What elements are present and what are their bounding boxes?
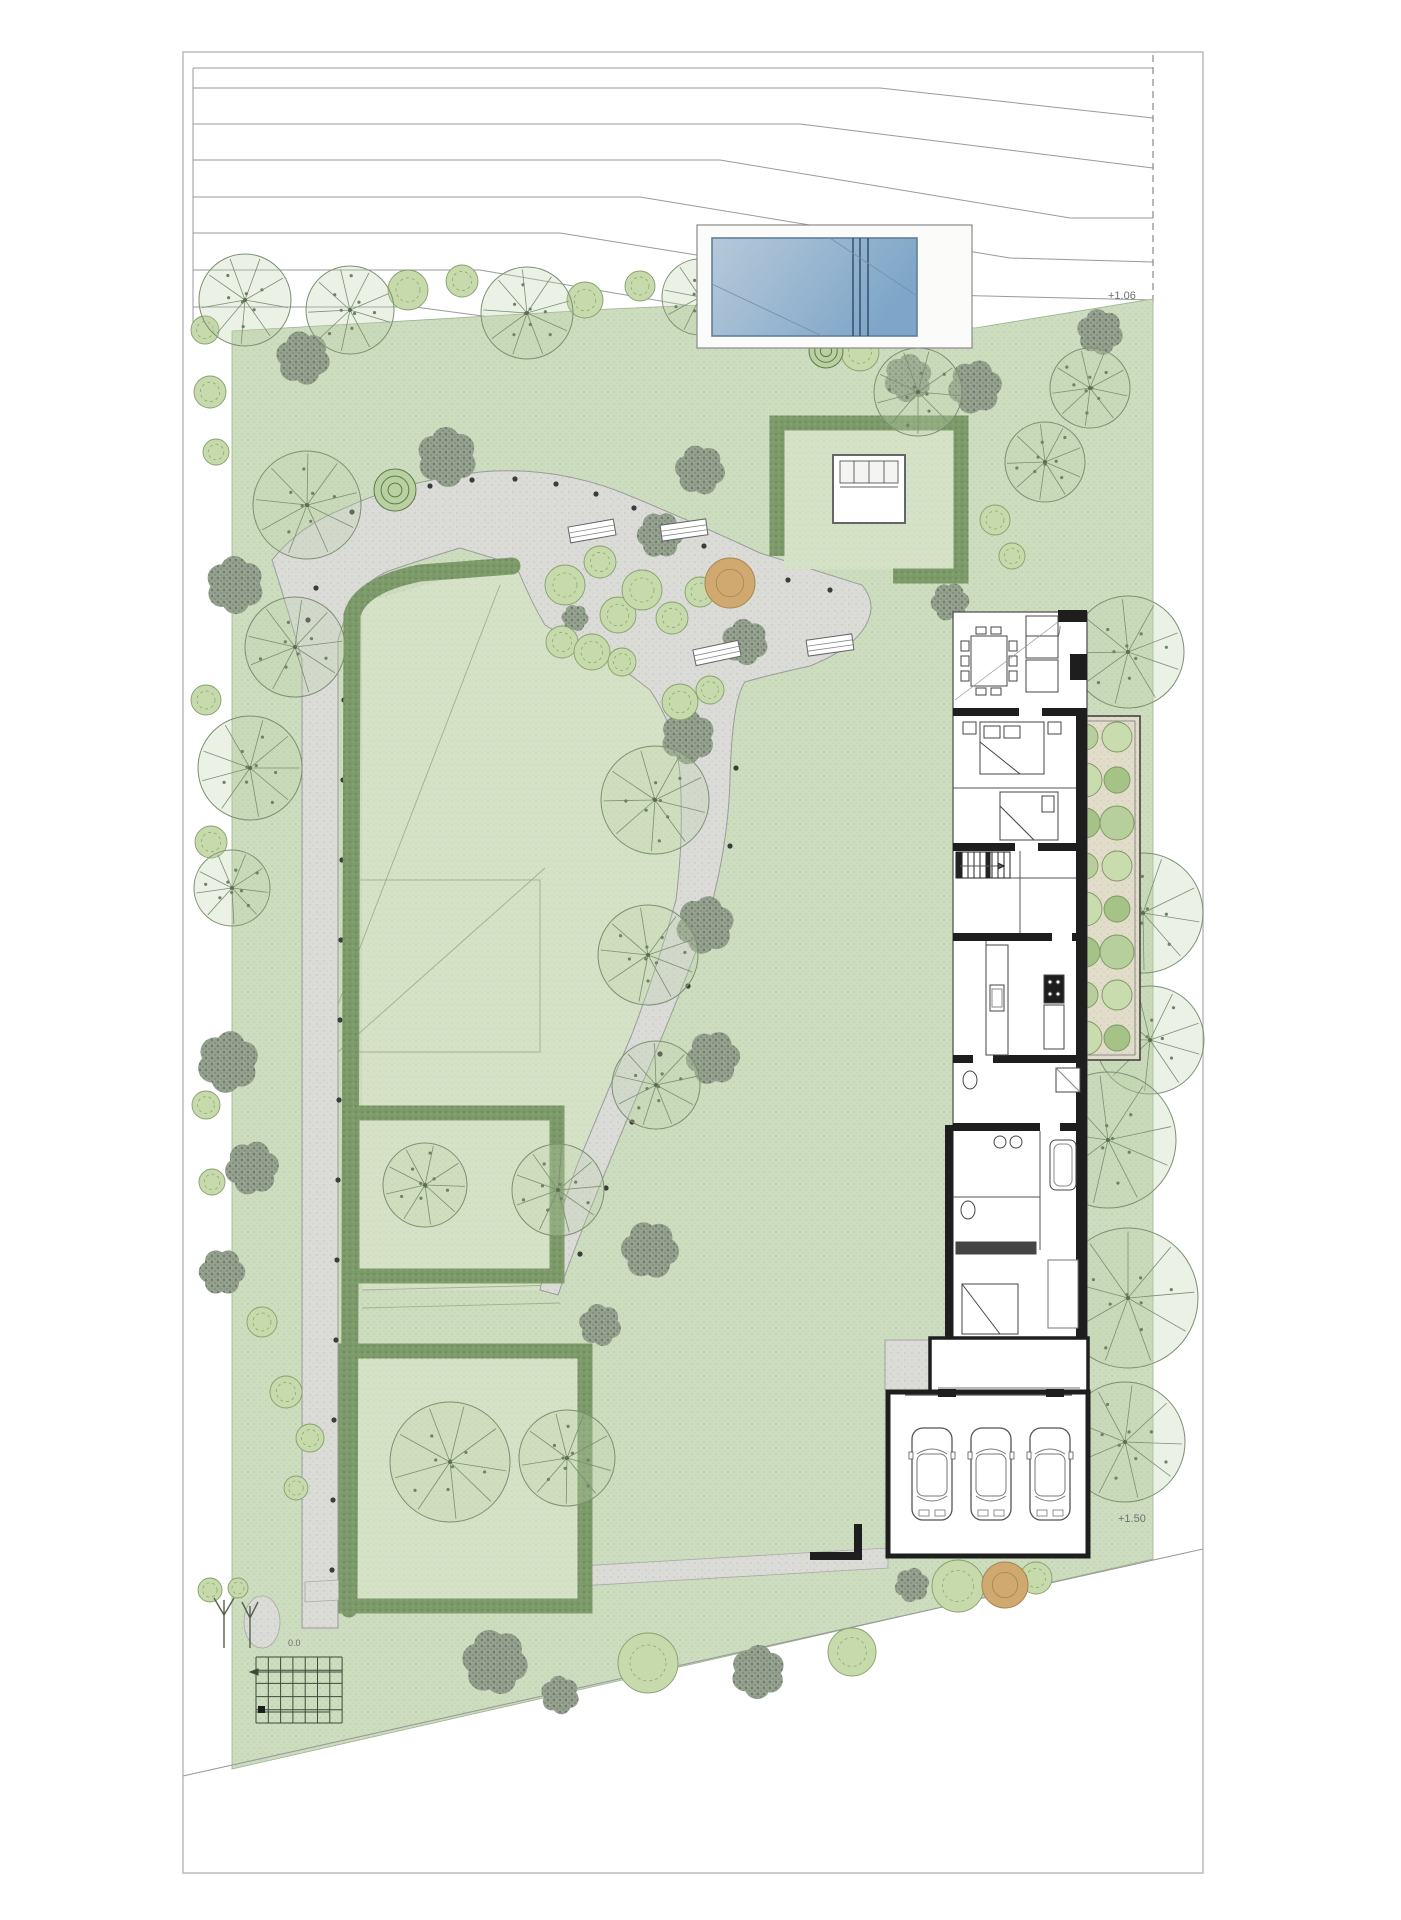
shrub <box>980 505 1010 535</box>
canopy-tree <box>199 254 291 346</box>
shrub <box>932 1560 984 1612</box>
path-marker-dot <box>733 765 738 770</box>
canopy-tree <box>519 1410 615 1506</box>
shrub <box>270 1376 302 1408</box>
ring-shrub <box>374 469 416 511</box>
canopy-tree <box>245 597 345 697</box>
basin <box>994 1136 1006 1148</box>
path-marker-dot <box>337 1017 342 1022</box>
sofa-2 <box>1026 660 1058 692</box>
stove <box>1044 975 1064 1003</box>
tan-shrub <box>982 1562 1028 1608</box>
shrub <box>584 546 616 578</box>
path-marker-dot <box>331 1417 336 1422</box>
planter-shrub <box>1102 722 1132 752</box>
shrub <box>228 1578 248 1598</box>
swimming-pool <box>697 225 972 348</box>
planter-shrub <box>1100 935 1134 969</box>
toilet-2 <box>961 1201 975 1219</box>
path-marker-dot <box>827 587 832 592</box>
shrub <box>622 570 662 610</box>
shrub <box>608 648 636 676</box>
kitchen-counter-2 <box>1044 1005 1064 1049</box>
path-marker-dot <box>785 577 790 582</box>
shrub <box>199 1169 225 1195</box>
shrub <box>662 684 698 720</box>
dining-table <box>971 636 1007 686</box>
garage-cars <box>909 1428 1073 1520</box>
drawing-sheet-page: +1.06 +1.50 0.0 <box>0 0 1401 1920</box>
path-marker-dot <box>313 585 318 590</box>
sofa <box>1026 616 1058 658</box>
shrub <box>696 676 724 704</box>
tan-shrub <box>705 558 755 608</box>
shrub <box>828 1628 876 1676</box>
elevation-label-upper: +1.06 <box>1108 290 1136 302</box>
car-2 <box>968 1428 1014 1520</box>
staircase <box>956 852 1010 878</box>
canopy-tree <box>198 716 302 820</box>
canopy-tree <box>598 905 698 1005</box>
planter-shrub <box>1104 896 1130 922</box>
canopy-tree <box>390 1402 510 1522</box>
shrub <box>574 634 610 670</box>
canopy-tree <box>1005 422 1085 502</box>
shrub <box>625 271 655 301</box>
entry-paving <box>885 1340 929 1390</box>
path-marker-dot <box>333 1337 338 1342</box>
bed-third <box>962 1284 1018 1334</box>
shrub <box>198 1578 222 1602</box>
canopy-tree <box>512 1144 604 1236</box>
path-marker-dot <box>330 1497 335 1502</box>
shrub <box>247 1307 277 1337</box>
path-marker-dot <box>701 543 706 548</box>
car-3 <box>1027 1428 1073 1520</box>
site-plan-drawing: +1.06 +1.50 0.0 <box>0 0 1401 1920</box>
canopy-tree <box>481 267 573 359</box>
shrub <box>296 1424 324 1452</box>
path-marker-dot <box>334 1257 339 1262</box>
planter-shrub <box>1102 851 1132 881</box>
elevation-label-lower: +1.50 <box>1118 1513 1146 1525</box>
planter-shrub <box>1104 767 1130 793</box>
canopy-tree <box>383 1143 467 1227</box>
canopy-tree <box>306 266 394 354</box>
path-marker-dot <box>469 477 474 482</box>
planter-shrub <box>1100 806 1134 840</box>
canopy-tree <box>612 1041 700 1129</box>
path-marker-dot <box>512 476 517 481</box>
canopy-tree <box>601 746 709 854</box>
shrub <box>203 439 229 465</box>
shrub <box>191 685 221 715</box>
shrub <box>618 1633 678 1693</box>
closet <box>1048 1260 1078 1328</box>
shrub <box>192 1091 220 1119</box>
shrub <box>656 602 688 634</box>
shrub <box>446 265 478 297</box>
canopy-tree <box>253 451 361 559</box>
planter-shrub <box>1102 980 1132 1010</box>
path-marker-dot <box>427 483 432 488</box>
path-marker-dot <box>593 491 598 496</box>
canopy-tree <box>1072 596 1184 708</box>
toilet <box>963 1071 977 1089</box>
canopy-tree <box>194 850 270 926</box>
path-marker-dot <box>329 1567 334 1572</box>
garage <box>888 1389 1088 1556</box>
planter-shrub <box>1104 1025 1130 1051</box>
shrub <box>545 565 585 605</box>
path-marker-dot <box>631 505 636 510</box>
path-marker-dot <box>553 481 558 486</box>
shrub <box>284 1476 308 1500</box>
shrub <box>194 376 226 408</box>
entry-vestibule <box>885 1338 1088 1394</box>
basin-2 <box>1010 1136 1022 1148</box>
shrub <box>546 626 578 658</box>
path-marker-dot <box>727 843 732 848</box>
path-marker-dot <box>336 1097 341 1102</box>
shrub <box>999 543 1025 569</box>
pool-water <box>712 238 917 336</box>
canopy-tree <box>1050 348 1130 428</box>
canopy-tree <box>874 348 962 436</box>
path-marker-dot <box>577 1251 582 1256</box>
car-1 <box>909 1428 955 1520</box>
path-marker-dot <box>335 1177 340 1182</box>
pavilion-building <box>833 455 905 523</box>
path-end-label: 0.0 <box>288 1638 301 1648</box>
wardrobe-hatch <box>956 1242 1036 1254</box>
